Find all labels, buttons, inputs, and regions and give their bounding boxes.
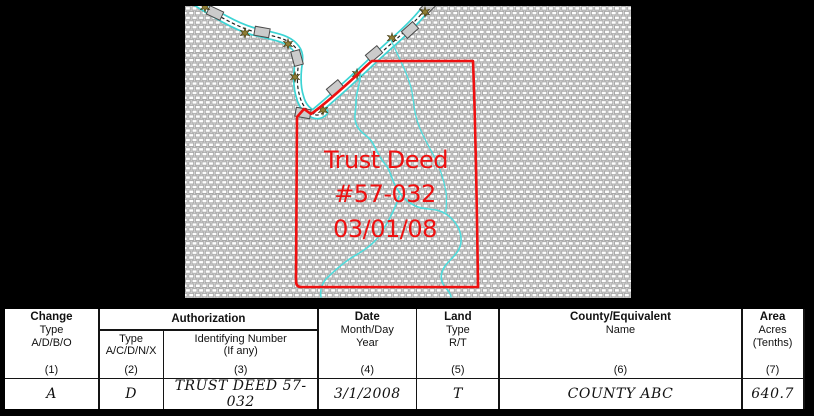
- value-county[interactable]: COUNTY ABC: [500, 379, 741, 409]
- header-county-title: County/Equivalent: [570, 311, 671, 324]
- header-land-line: R/T: [449, 337, 467, 350]
- levee-tie-icon: [254, 26, 270, 37]
- value-auth-type[interactable]: D: [100, 379, 163, 409]
- header-auth-id-line: (If any): [224, 345, 258, 358]
- header-land-title: Land: [444, 311, 471, 324]
- header-area: Area Acres (Tenths) (7): [743, 309, 803, 378]
- header-auth-type-num: (2): [124, 364, 137, 377]
- header-auth-type-line: Type: [119, 333, 143, 346]
- header-change-num: (1): [45, 364, 58, 377]
- header-area-title: Area: [760, 311, 786, 324]
- header-date-num: (4): [361, 364, 374, 377]
- change-record-table: Change Type A/D/B/O (1) Authorization Da…: [3, 307, 807, 412]
- header-land: Land Type R/T (5): [417, 309, 498, 378]
- parcel-annotation: Trust Deed #57-032 03/01/08: [323, 146, 448, 243]
- header-authorization-group: Authorization: [100, 309, 318, 329]
- page: Trust Deed #57-032 03/01/08 Change Type …: [0, 0, 814, 416]
- annotation-line-3: 03/01/08: [333, 215, 437, 243]
- header-area-line: Acres: [759, 324, 787, 337]
- header-change-title: Change: [30, 311, 72, 324]
- header-auth-type-line: A/C/D/N/X: [106, 345, 157, 358]
- value-date[interactable]: 3/1/2008: [319, 379, 416, 409]
- header-land-line: Type: [446, 324, 470, 337]
- map-canvas: Trust Deed #57-032 03/01/08: [185, 6, 631, 298]
- header-area-num: (7): [766, 364, 779, 377]
- header-date-line: Month/Day: [341, 324, 394, 337]
- map-view: Trust Deed #57-032 03/01/08: [182, 3, 634, 301]
- annotation-line-2: #57-032: [334, 180, 436, 208]
- header-auth-type: Type A/C/D/N/X (2): [100, 331, 163, 378]
- value-change-type[interactable]: A: [5, 379, 98, 409]
- header-county-line: Name: [606, 324, 635, 337]
- header-auth-id: Identifying Number (If any) (3): [164, 331, 317, 378]
- header-county: County/Equivalent Name (6): [500, 309, 741, 378]
- value-area[interactable]: 640.7: [743, 379, 803, 409]
- annotation-line-1: Trust Deed: [323, 146, 448, 174]
- header-auth-id-line: Identifying Number: [195, 333, 287, 346]
- header-area-line: (Tenths): [753, 337, 793, 350]
- header-date-title: Date: [355, 311, 380, 324]
- header-change-line: Type: [40, 324, 64, 337]
- header-county-num: (6): [614, 364, 627, 377]
- header-change-line: A/D/B/O: [31, 337, 71, 350]
- value-auth-id[interactable]: TRUST DEED 57-032: [164, 379, 317, 409]
- header-land-num: (5): [451, 364, 464, 377]
- value-land-type[interactable]: T: [417, 379, 498, 409]
- header-date-line: Year: [356, 337, 378, 350]
- header-auth-id-num: (3): [234, 364, 247, 377]
- header-change: Change Type A/D/B/O (1): [5, 309, 98, 378]
- header-date: Date Month/Day Year (4): [319, 309, 416, 378]
